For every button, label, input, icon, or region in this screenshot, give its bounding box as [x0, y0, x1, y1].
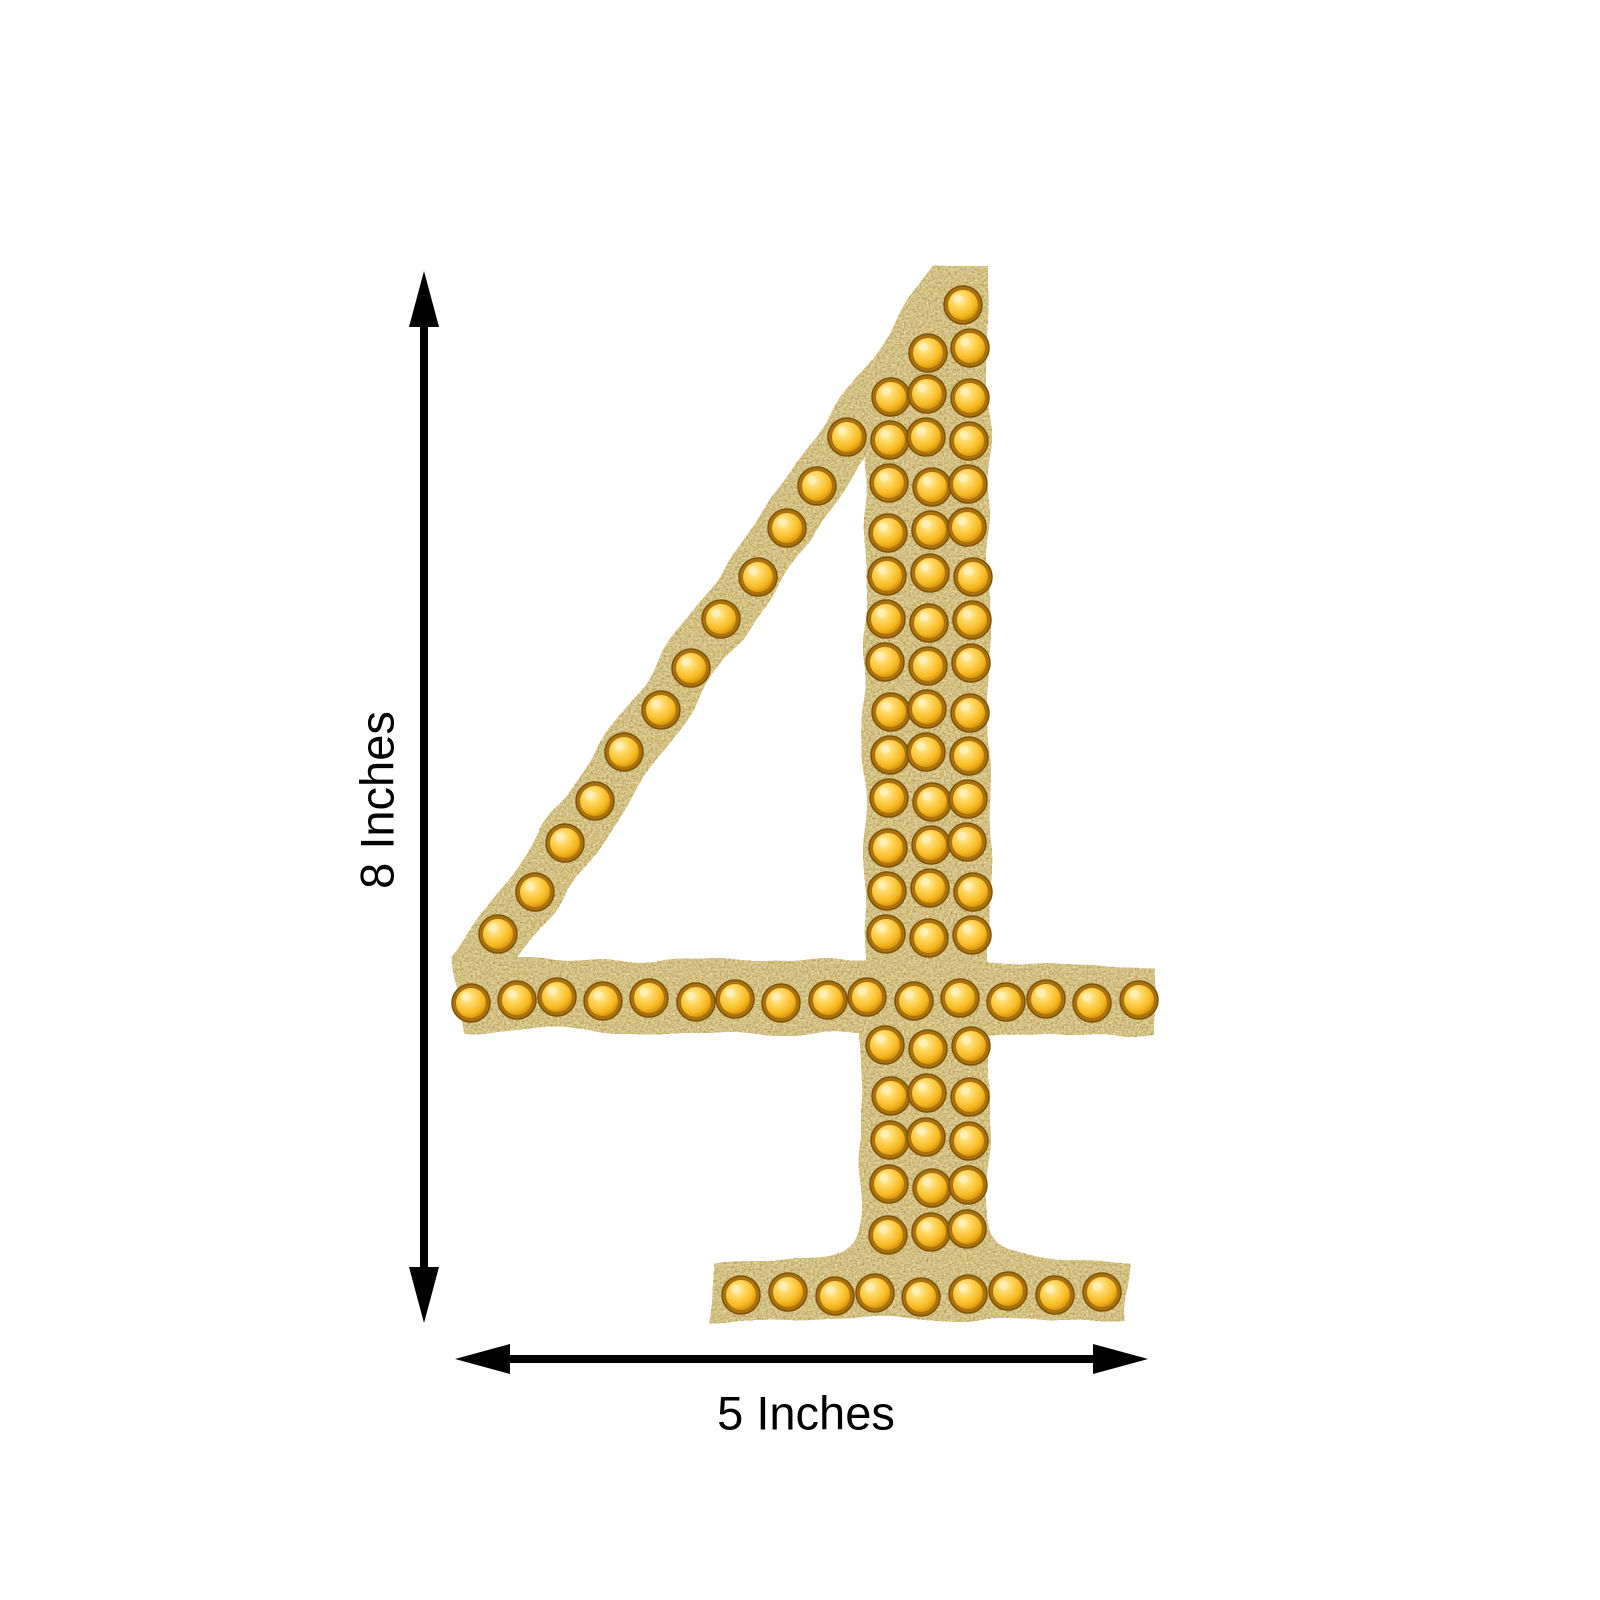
rhinestone — [672, 649, 710, 687]
rhinestone — [910, 604, 948, 642]
rhinestone — [907, 733, 945, 771]
width-label: 5 Inches — [717, 1390, 895, 1437]
rhinestone — [871, 1121, 909, 1159]
product-dimension-diagram: 8 Inches 5 Inches — [0, 0, 1600, 1600]
rhinestone — [911, 869, 949, 907]
diagram-canvas — [0, 0, 1600, 1600]
numeral-4-shape — [453, 265, 1154, 1320]
rhinestone — [871, 421, 909, 459]
rhinestone — [913, 1169, 951, 1207]
rhinestone — [949, 1275, 987, 1313]
rhinestone — [1073, 984, 1111, 1022]
rhinestone — [908, 1074, 946, 1112]
rhinestone — [948, 823, 986, 861]
rhinestone — [902, 1278, 940, 1316]
rhinestone — [452, 984, 490, 1022]
rhinestone — [913, 468, 951, 506]
rhinestone — [762, 984, 800, 1022]
rhinestone — [867, 915, 905, 953]
rhinestone — [944, 286, 982, 324]
rhinestone — [642, 691, 680, 729]
rhinestone — [538, 978, 576, 1016]
rhinestone — [907, 1118, 945, 1156]
rhinestone — [872, 693, 910, 731]
rhinestone — [911, 554, 949, 592]
rhinestone — [1036, 1276, 1074, 1314]
rhinestone — [954, 558, 992, 596]
rhinestone — [951, 329, 989, 367]
width-arrow-icon — [455, 1344, 1148, 1374]
rhinestone — [584, 982, 622, 1020]
rhinestone — [870, 779, 908, 817]
rhinestones — [452, 286, 1158, 1316]
rhinestone — [856, 1274, 894, 1312]
rhinestone — [1027, 980, 1065, 1018]
rhinestone — [909, 334, 947, 372]
rhinestone — [809, 981, 847, 1019]
rhinestone — [895, 982, 933, 1020]
rhinestone — [951, 379, 989, 417]
rhinestone — [907, 418, 945, 456]
rhinestone — [869, 514, 907, 552]
rhinestone — [872, 378, 910, 416]
rhinestone — [868, 872, 906, 910]
rhinestone — [702, 600, 740, 638]
rhinestone — [576, 782, 614, 820]
height-arrow-icon — [409, 271, 439, 1323]
rhinestone — [869, 1216, 907, 1254]
rhinestone — [605, 733, 643, 771]
rhinestone — [868, 557, 906, 595]
rhinestone — [1120, 981, 1158, 1019]
rhinestone — [912, 511, 950, 549]
rhinestone — [949, 780, 987, 818]
rhinestone — [866, 1026, 904, 1064]
rhinestone — [989, 1272, 1027, 1310]
rhinestone — [908, 375, 946, 413]
rhinestone — [871, 736, 909, 774]
rhinestone — [950, 1122, 988, 1160]
rhinestone — [952, 1027, 990, 1065]
rhinestone — [677, 983, 715, 1021]
rhinestone — [870, 464, 908, 502]
rhinestone — [949, 1166, 987, 1204]
rhinestone — [722, 1276, 760, 1314]
rhinestone — [816, 1277, 854, 1315]
rhinestone — [954, 873, 992, 911]
rhinestone — [913, 783, 951, 821]
rhinestone — [987, 983, 1025, 1021]
rhinestone — [912, 1213, 950, 1251]
rhinestone — [953, 601, 991, 639]
rhinestone — [870, 1165, 908, 1203]
rhinestone — [912, 826, 950, 864]
rhinestone — [828, 418, 866, 456]
rhinestone — [479, 915, 517, 953]
rhinestone — [498, 981, 536, 1019]
rhinestone — [909, 1030, 947, 1068]
rhinestone — [949, 465, 987, 503]
rhinestone — [798, 467, 836, 505]
rhinestone — [1083, 1273, 1121, 1311]
rhinestone — [716, 980, 754, 1018]
rhinestone — [948, 508, 986, 546]
rhinestone — [848, 978, 886, 1016]
rhinestone — [952, 644, 990, 682]
rhinestone — [546, 824, 584, 862]
rhinestone — [910, 919, 948, 957]
numeral-4 — [452, 265, 1158, 1320]
rhinestone — [948, 1210, 986, 1248]
rhinestone — [739, 558, 777, 596]
rhinestone — [869, 829, 907, 867]
rhinestone — [866, 643, 904, 681]
height-label: 8 Inches — [354, 711, 401, 889]
rhinestone — [909, 647, 947, 685]
rhinestone — [872, 1077, 910, 1115]
rhinestone — [769, 1273, 807, 1311]
rhinestone — [951, 694, 989, 732]
rhinestone — [768, 509, 806, 547]
rhinestone — [630, 979, 668, 1017]
rhinestone — [941, 979, 979, 1017]
rhinestone — [950, 422, 988, 460]
rhinestone — [951, 1078, 989, 1116]
rhinestone — [953, 916, 991, 954]
rhinestone — [516, 873, 554, 911]
rhinestone — [867, 600, 905, 638]
rhinestone — [950, 737, 988, 775]
rhinestone — [908, 690, 946, 728]
